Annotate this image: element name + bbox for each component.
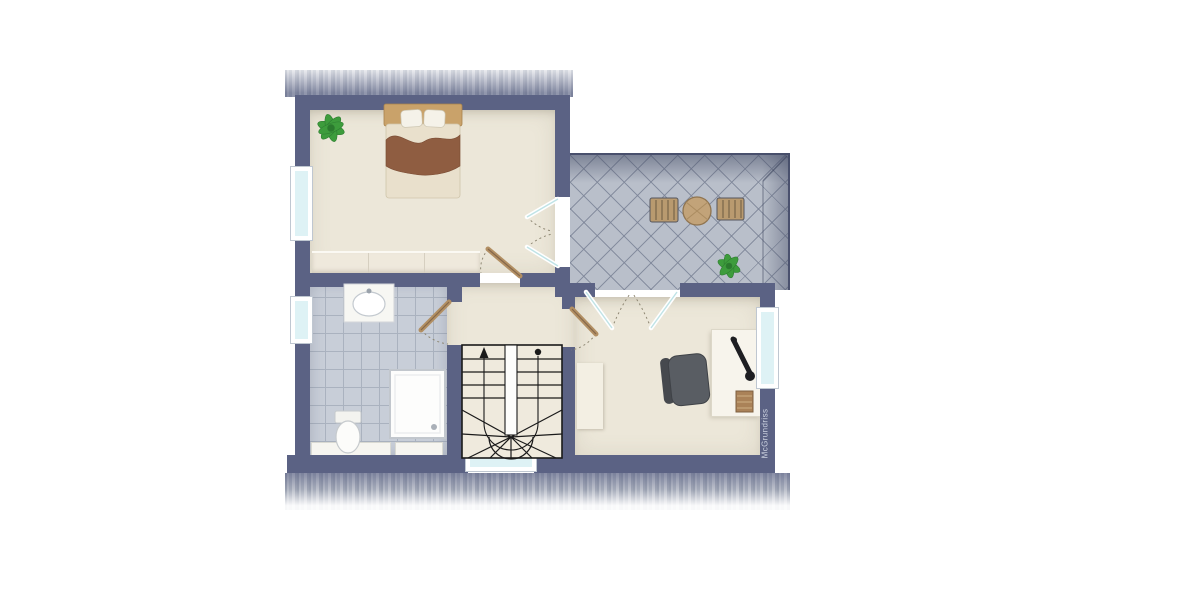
window-glass — [295, 171, 308, 236]
bathroom-window — [291, 297, 312, 343]
office-desk — [712, 330, 760, 416]
wall-bathroom-stair — [447, 345, 462, 458]
office-cabinet — [577, 363, 603, 429]
hallway-floor — [447, 283, 575, 455]
wardrobe-divider — [368, 253, 369, 274]
roof-overhang-top — [285, 70, 573, 97]
wall-bottom-right — [534, 455, 775, 473]
terrace-roof-shadow-right — [762, 153, 790, 290]
wall-bedroom-top — [295, 95, 570, 110]
wall-terrace-office-left — [555, 283, 595, 297]
window-glass — [761, 312, 774, 384]
watermark: McGrundriss — [755, 394, 775, 472]
window-glass — [295, 301, 308, 339]
bedroom-window — [291, 167, 312, 240]
wall-bottom-left — [287, 455, 468, 473]
wall-hall-office-stub — [562, 283, 575, 309]
stair-window — [466, 450, 536, 471]
wardrobe-divider — [424, 253, 425, 274]
roof-overhang-bottom — [285, 473, 790, 510]
wall-bedroom-right-upper — [555, 95, 570, 197]
bathroom-tiled-floor — [310, 283, 447, 455]
watermark-text: McGrundriss — [761, 408, 770, 458]
office-window — [757, 308, 778, 388]
bedroom-floor — [310, 110, 555, 273]
built-in-wardrobe — [312, 251, 480, 274]
window-glass — [470, 454, 532, 467]
wall-stair-office — [562, 347, 575, 458]
terrace-roof-shadow-top — [570, 153, 790, 183]
wall-bathroom-hall-upper — [447, 283, 462, 302]
floor-plan: McGrundriss — [0, 0, 1200, 600]
